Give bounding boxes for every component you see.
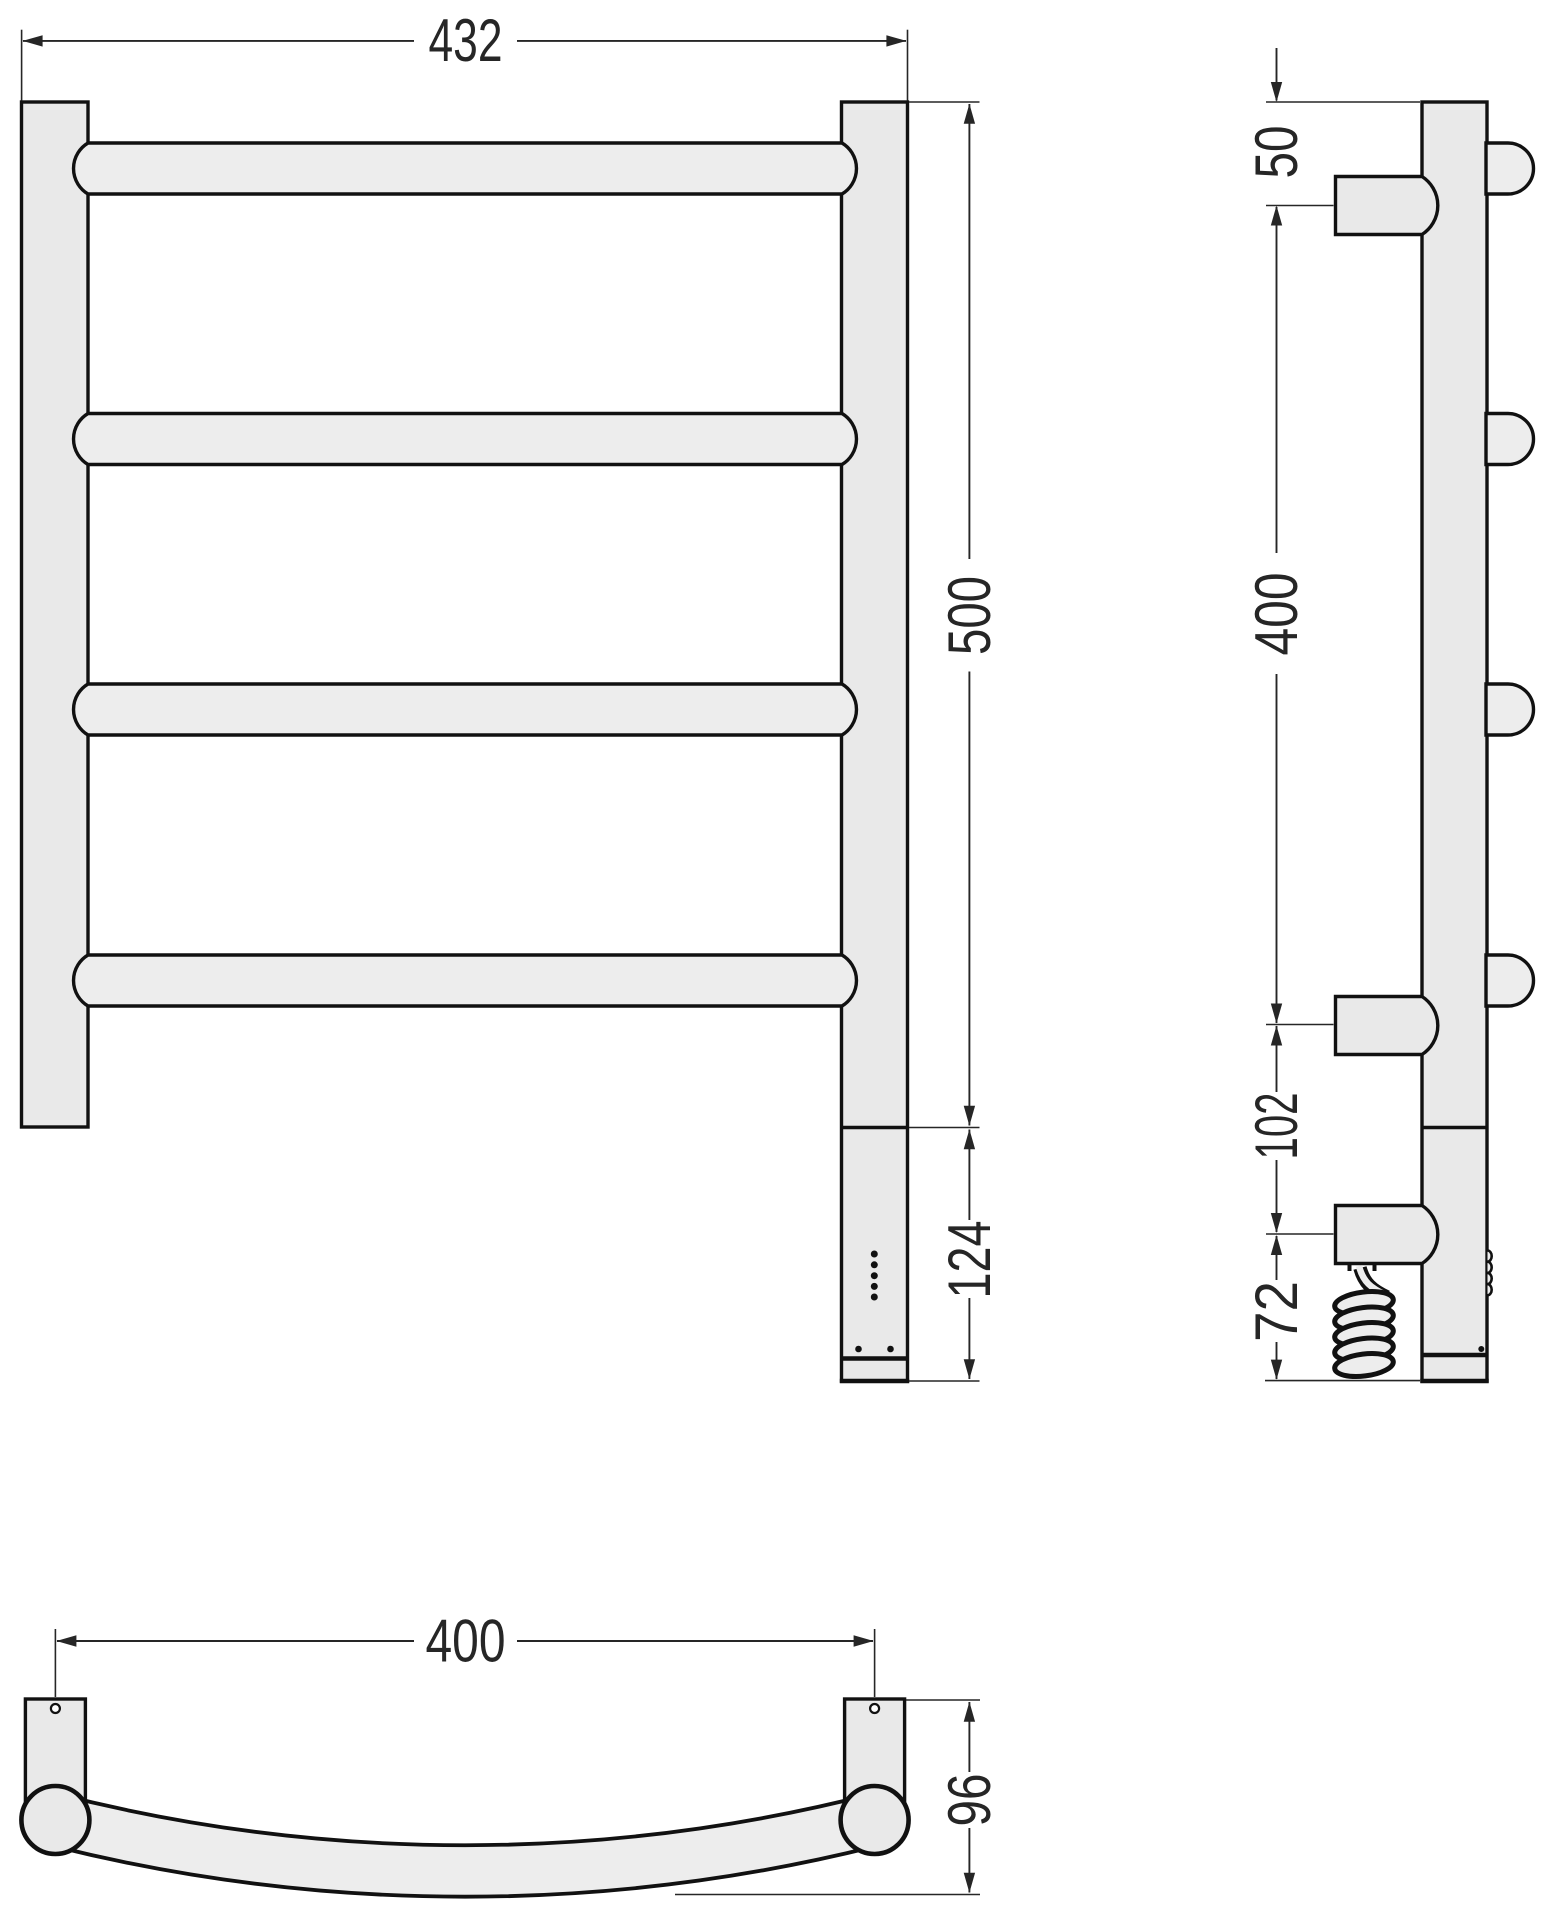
svg-text:500: 500 <box>936 576 1003 655</box>
svg-text:96: 96 <box>936 1774 1003 1827</box>
svg-text:102: 102 <box>1243 1093 1310 1160</box>
svg-text:400: 400 <box>1243 573 1310 656</box>
svg-text:432: 432 <box>429 7 503 74</box>
svg-text:50: 50 <box>1243 126 1310 179</box>
svg-text:400: 400 <box>426 1608 506 1675</box>
svg-text:124: 124 <box>936 1221 1003 1299</box>
svg-text:72: 72 <box>1243 1281 1310 1342</box>
